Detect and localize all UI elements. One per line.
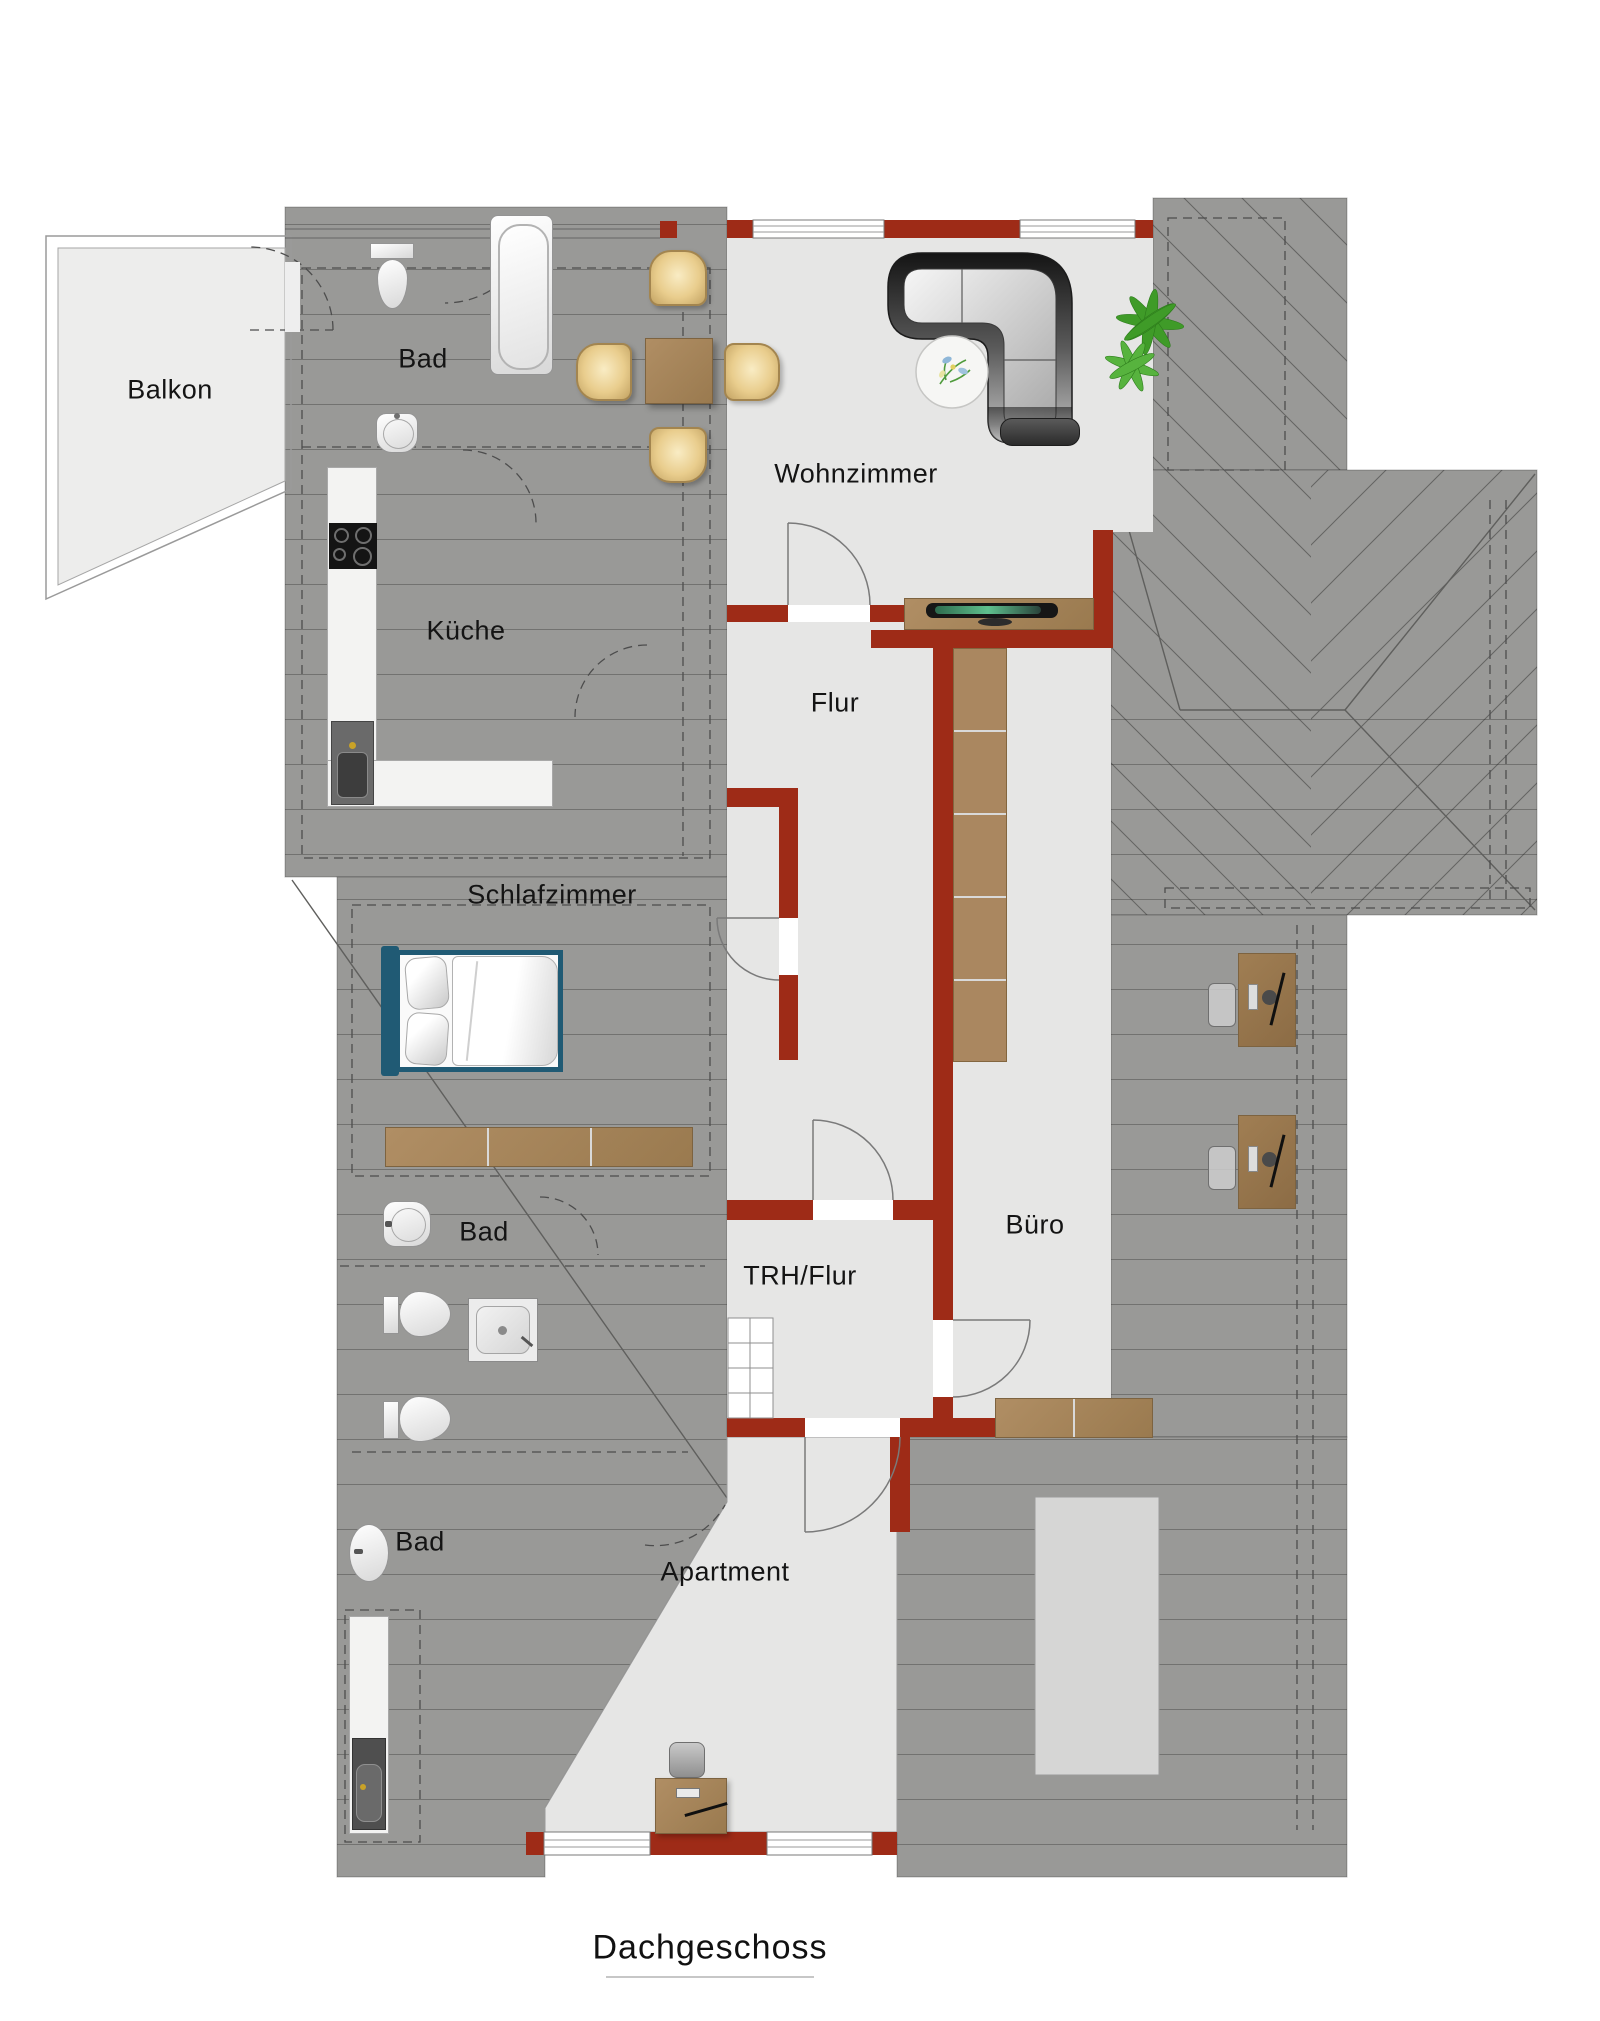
round-rug xyxy=(916,336,988,408)
kitchenette-tap xyxy=(360,1784,366,1790)
toilet-cistern-mid xyxy=(383,1296,399,1334)
washbasin-top-bowl xyxy=(383,419,414,449)
stove xyxy=(329,523,377,569)
bed-pillow-1 xyxy=(404,955,450,1010)
label-bad-mitte: Bad xyxy=(459,1217,509,1248)
kitchen-sink-bowl xyxy=(337,752,368,798)
label-trh-flur: TRH/Flur xyxy=(743,1261,857,1292)
washbasin-mid-bowl xyxy=(391,1208,426,1242)
label-bad-top: Bad xyxy=(398,344,448,375)
label-buero: Büro xyxy=(1005,1210,1064,1241)
tv xyxy=(926,603,1058,618)
sideboard-schlafzimmer xyxy=(385,1127,693,1167)
dining-chair-right xyxy=(724,343,780,401)
window-top-2 xyxy=(1020,220,1135,238)
label-kueche: Küche xyxy=(426,616,505,647)
floorplan-drawing xyxy=(0,0,1600,2021)
window-bottom-1 xyxy=(544,1832,650,1855)
window-bottom-2 xyxy=(767,1832,872,1855)
label-wohnzimmer: Wohnzimmer xyxy=(774,459,938,490)
tv-stand xyxy=(978,618,1012,626)
kitchen-sink-tap xyxy=(349,742,356,749)
roof-desk-chair-1 xyxy=(1208,983,1236,1027)
shower-drain xyxy=(498,1326,507,1335)
floor-title: Dachgeschoss xyxy=(592,1929,827,1968)
roof-desk-chair-2 xyxy=(1208,1146,1236,1190)
toilet-cistern-low xyxy=(383,1401,399,1439)
dining-chair-top xyxy=(649,250,707,306)
dining-chair-left xyxy=(576,343,632,401)
bed-duvet xyxy=(452,956,558,1066)
bathtub-inner xyxy=(498,224,549,370)
label-schlafzimmer: Schlafzimmer xyxy=(467,880,637,911)
skylight-area xyxy=(1035,1497,1159,1775)
console-table xyxy=(1000,418,1080,446)
roof-desk-2-keyboard xyxy=(1248,1146,1258,1172)
dining-chair-bottom xyxy=(649,427,707,483)
label-balkon: Balkon xyxy=(127,375,213,406)
wardrobe xyxy=(953,648,1007,1062)
kitchenette-sink-bowl xyxy=(356,1764,382,1822)
washbasin-mid-tap xyxy=(385,1221,392,1227)
toilet-cistern-top xyxy=(370,243,414,259)
window-top-1 xyxy=(753,220,884,238)
roof-desk-1-keyboard xyxy=(1248,984,1258,1010)
dining-table xyxy=(645,338,713,404)
label-flur: Flur xyxy=(811,688,860,719)
apartment-desk-label xyxy=(676,1788,700,1798)
floor-title-underline xyxy=(606,1976,814,1978)
label-bad-unten: Bad xyxy=(395,1527,445,1558)
balcony-outline xyxy=(46,236,291,599)
washbasin-low-tap xyxy=(354,1549,363,1554)
balcony-door-opening xyxy=(285,262,300,332)
floorplan-canvas: Balkon Bad Küche Wohnzimmer Flur Schlafz… xyxy=(0,0,1600,2021)
washbasin-top-tap xyxy=(394,413,400,419)
bed-pillow-2 xyxy=(404,1012,450,1067)
label-apartment: Apartment xyxy=(660,1557,789,1588)
apartment-desk-chair xyxy=(669,1742,705,1778)
staircase xyxy=(728,1318,773,1418)
sideboard-roof xyxy=(995,1398,1153,1438)
